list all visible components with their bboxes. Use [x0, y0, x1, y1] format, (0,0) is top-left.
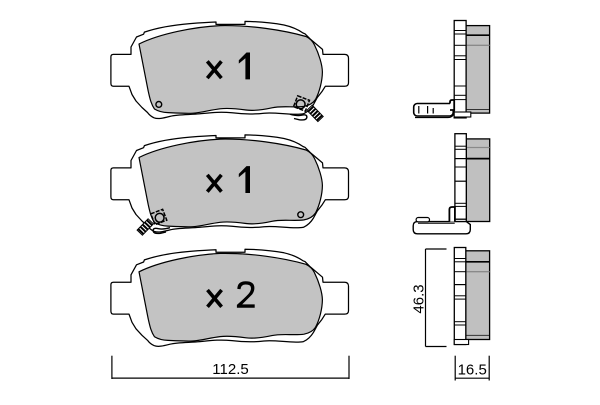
svg-text:16.5: 16.5 [458, 362, 487, 379]
svg-text:46.3: 46.3 [411, 284, 428, 313]
svg-text:112.5: 112.5 [212, 361, 248, 378]
